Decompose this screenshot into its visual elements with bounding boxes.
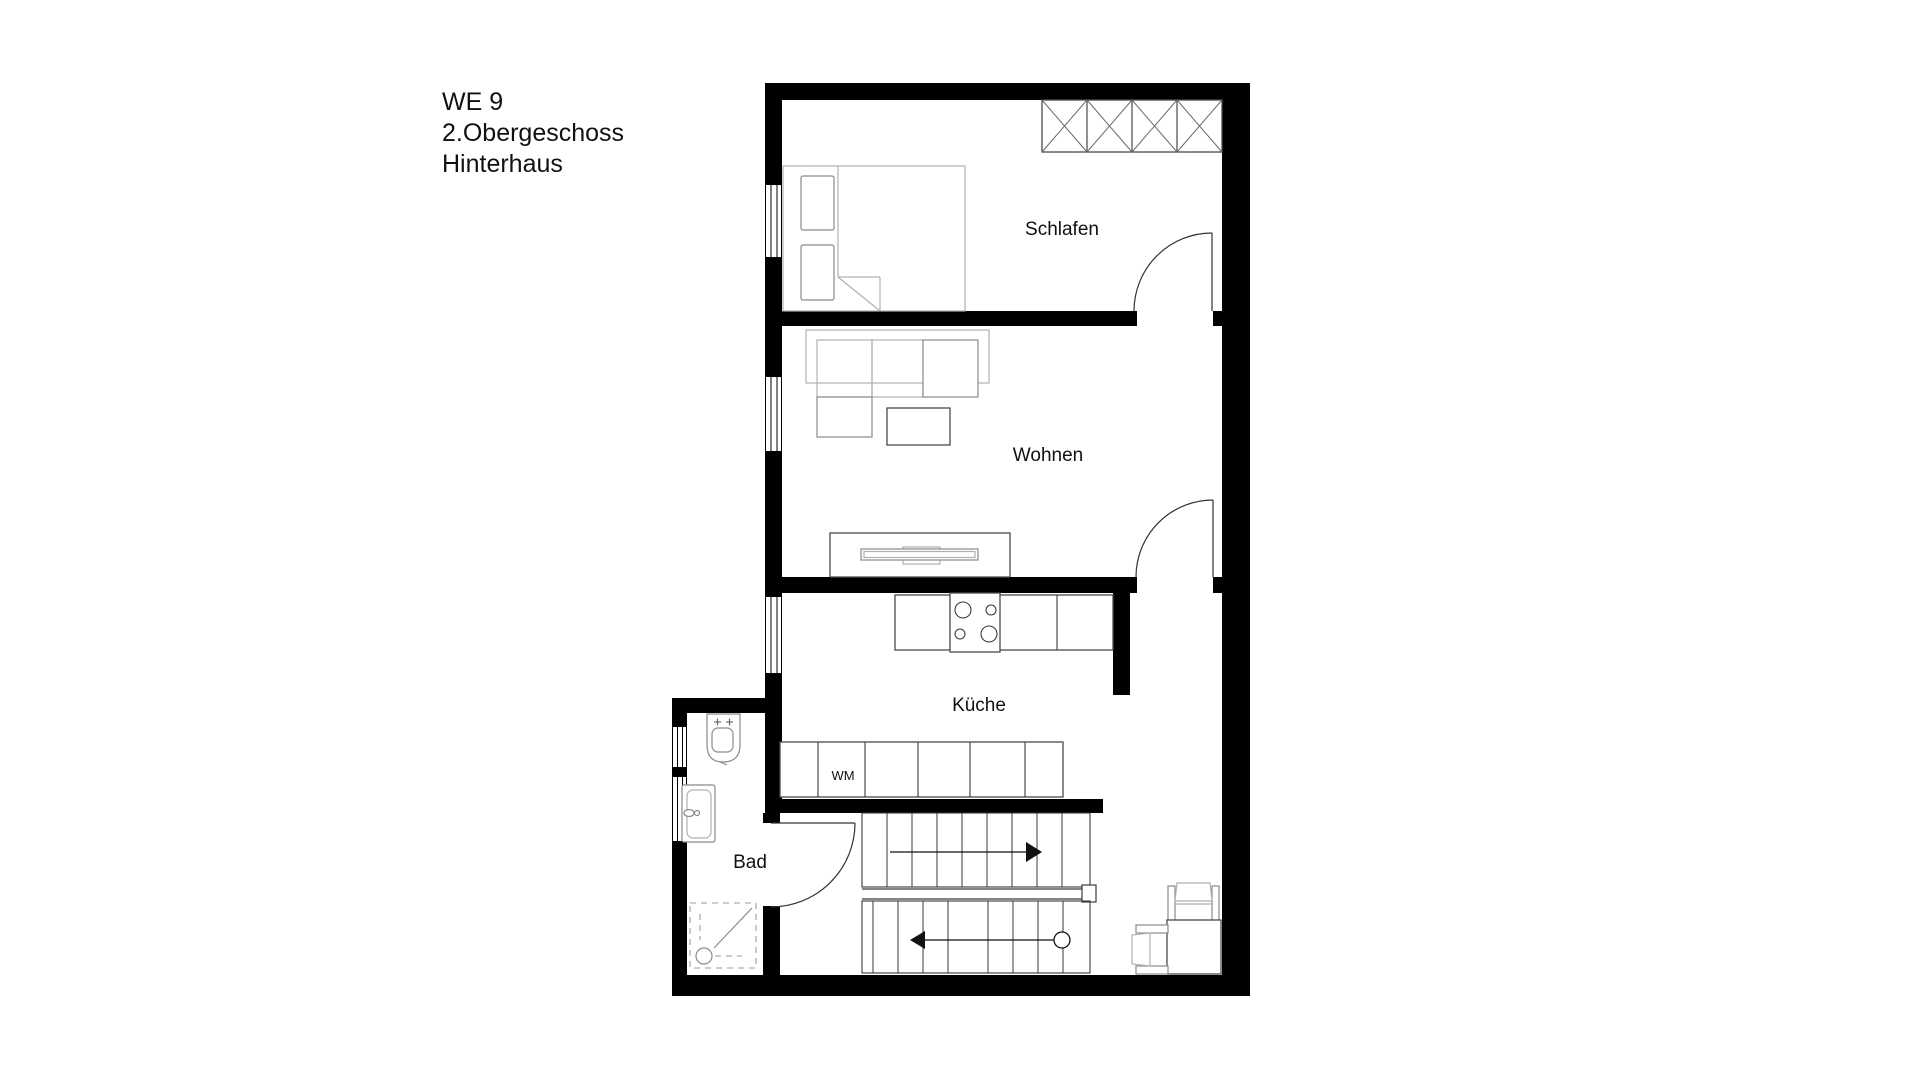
faucet: [684, 810, 700, 817]
kitchen-counter-bottom: WM: [780, 742, 1063, 797]
stove: [950, 593, 1000, 652]
bad-label: Bad: [733, 852, 767, 873]
left-wall-seg-3: [765, 451, 782, 597]
kueche-window: [765, 597, 782, 673]
shower-drain: [696, 948, 712, 964]
sofa-cushion-right: [923, 340, 978, 397]
bathtub: [682, 785, 715, 842]
schlafen-room: Schlafen: [783, 100, 1222, 311]
staircase: [862, 813, 1096, 973]
tv: [861, 549, 978, 560]
schlafen-wohnen-wall: [765, 311, 1137, 326]
hall-seating-group: [1132, 883, 1221, 974]
kueche-right-wall: [1113, 593, 1130, 695]
floor-plan-page: WE 9 2.Obergeschoss Hinterhaus: [0, 0, 1920, 1080]
hall-table: [1167, 920, 1221, 974]
schlafen-door: [1134, 233, 1212, 311]
title-line-3: Hinterhaus: [442, 150, 563, 178]
wohnen-window: [765, 377, 782, 451]
kitchen-counter-top: [895, 593, 1113, 652]
bed-pillow-2: [801, 245, 834, 300]
bad-left-wall-seg-2: [672, 767, 687, 777]
wohnen-kueche-wall: [765, 577, 1137, 593]
schlafen-door-jamb: [1213, 311, 1222, 326]
bad-left-wall-seg-1: [672, 698, 687, 727]
title-block: WE 9 2.Obergeschoss Hinterhaus: [442, 88, 624, 178]
bad-top-wall: [672, 698, 782, 713]
stair-arrow-down: [910, 931, 1070, 949]
shower: [690, 903, 756, 968]
schlafen-label: Schlafen: [1025, 219, 1099, 240]
wohnen-door: [1136, 500, 1213, 577]
tv-sideboard: [830, 533, 1010, 577]
left-wall-seg-1: [765, 83, 782, 185]
closet: [1042, 100, 1222, 152]
washing-machine-label: WM: [831, 768, 854, 783]
armchair-left: [1132, 925, 1168, 974]
bad-hall-wall-lower: [763, 906, 780, 975]
armchair-top: [1168, 883, 1219, 922]
stair-flight-upper: [862, 813, 1090, 887]
bad-left-wall-seg-3: [672, 841, 687, 975]
title-line-1: WE 9: [442, 88, 503, 116]
kueche-label: Küche: [952, 695, 1006, 716]
title-line-2: 2.Obergeschoss: [442, 119, 624, 147]
right-wall: [1222, 83, 1250, 996]
bad-window-1: [672, 727, 687, 767]
wohnen-room: Wohnen: [806, 330, 1083, 577]
stair-arrow-up: [890, 842, 1042, 862]
sofa-chaise: [817, 397, 872, 437]
kueche-room: WM Küche: [780, 593, 1113, 797]
bed: [783, 166, 965, 311]
coffee-table: [887, 408, 950, 445]
bad-door: [771, 823, 855, 907]
bad-hall-wall-upper-stub: [763, 813, 780, 823]
kueche-bottom-wall: [765, 799, 1103, 813]
bed-blanket-fold: [838, 277, 880, 311]
bad-room: Bad: [682, 714, 767, 968]
schlafen-window: [765, 185, 782, 257]
wohnen-door-jamb: [1213, 577, 1222, 593]
toilet: [707, 714, 740, 765]
wohnen-label: Wohnen: [1013, 445, 1083, 466]
bed-pillow-1: [801, 176, 834, 230]
stair-flight-lower: [862, 901, 1090, 973]
top-wall: [765, 83, 1250, 100]
bottom-wall: [672, 975, 1250, 996]
floor-plan-drawing: WE 9 2.Obergeschoss Hinterhaus: [0, 0, 1920, 1080]
